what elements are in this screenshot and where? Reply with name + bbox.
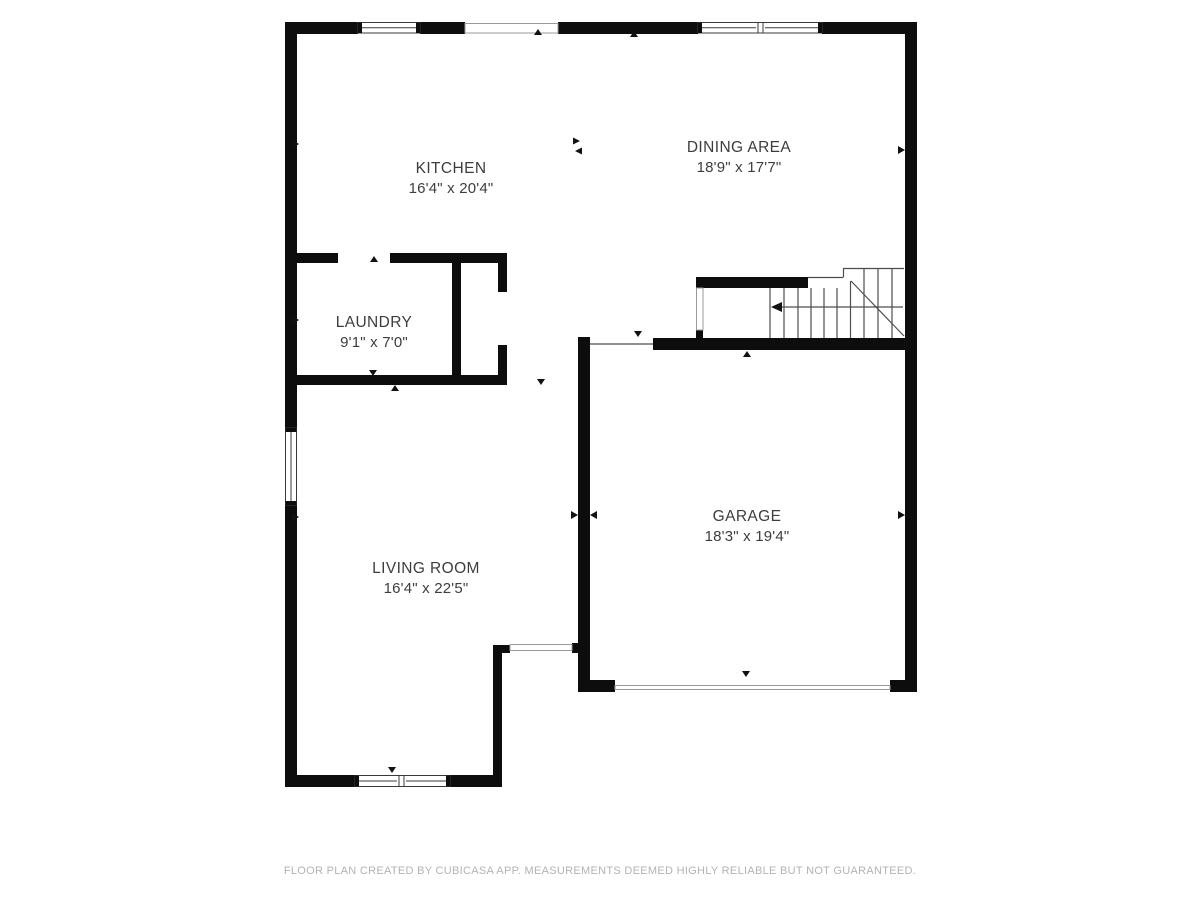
wall-segment: [285, 375, 507, 385]
marker-triangle: [898, 511, 905, 519]
kitchen-label: KITCHEN: [416, 160, 487, 177]
window-symbol-dining: [698, 23, 822, 34]
wall-segment: [285, 505, 297, 787]
marker-triangle: [573, 138, 580, 145]
marker-triangle: [634, 331, 642, 337]
wall-segment: [498, 253, 507, 292]
wall-segment: [696, 277, 808, 288]
living-room-label: LIVING ROOM: [372, 560, 480, 577]
wall-segment: [905, 22, 917, 692]
opening-top-wall: [465, 24, 558, 34]
laundry-dimensions: 9'1" x 7'0": [340, 334, 408, 351]
wall-segment: [493, 645, 502, 787]
wall-segment: [558, 22, 698, 34]
marker-triangle: [742, 671, 750, 677]
kitchen-dimensions: 16'4" x 20'4": [409, 180, 494, 197]
floor-plan: KITCHEN 16'4" x 20'4" DINING AREA 18'9" …: [0, 0, 1200, 900]
laundry-label: LAUNDRY: [336, 314, 413, 331]
measurement-markers: [292, 29, 905, 773]
door-openings: [465, 24, 890, 690]
wall-segment: [578, 680, 615, 692]
window-symbol-living-bottom: [355, 776, 450, 787]
marker-triangle: [575, 148, 582, 155]
marker-triangle: [391, 385, 399, 391]
wall-segment: [493, 645, 510, 653]
wall-segment: [285, 253, 338, 263]
wall-segment: [822, 22, 917, 34]
living-room-dimensions: 16'4" x 22'5": [384, 580, 469, 597]
wall-segment: [890, 680, 917, 692]
window-symbol-kitchen: [358, 23, 420, 34]
dining-area-label: DINING AREA: [687, 139, 792, 156]
wall-segment: [452, 253, 461, 385]
window-symbol-living-left: [286, 428, 297, 505]
garage-dimensions: 18'3" x 19'4": [705, 528, 790, 545]
marker-triangle: [388, 767, 396, 773]
marker-triangle: [898, 146, 905, 154]
wall-segment: [420, 22, 465, 34]
floor-plan-svg: KITCHEN 16'4" x 20'4" DINING AREA 18'9" …: [0, 0, 1200, 900]
opening-stairs-left: [697, 288, 704, 330]
garage-label: GARAGE: [713, 508, 782, 525]
opening-garage-door: [615, 686, 890, 690]
marker-triangle: [370, 256, 378, 262]
wall-segment: [285, 775, 355, 787]
windows: [286, 23, 823, 787]
exterior-walls: [285, 22, 917, 787]
marker-triangle: [571, 511, 578, 519]
wall-segment: [390, 253, 507, 263]
dining-area-dimensions: 18'9" x 17'7": [697, 159, 782, 176]
opening-front-entry: [510, 645, 572, 651]
wall-segment: [498, 345, 507, 385]
wall-segment: [285, 22, 297, 428]
marker-triangle: [743, 351, 751, 357]
room-labels: KITCHEN 16'4" x 20'4" DINING AREA 18'9" …: [336, 139, 792, 597]
marker-triangle: [590, 511, 597, 519]
wall-segment: [653, 338, 917, 350]
footer-disclaimer: FLOOR PLAN CREATED BY CUBICASA APP. MEAS…: [284, 865, 916, 877]
wall-segment: [578, 337, 590, 692]
marker-triangle: [537, 379, 545, 385]
